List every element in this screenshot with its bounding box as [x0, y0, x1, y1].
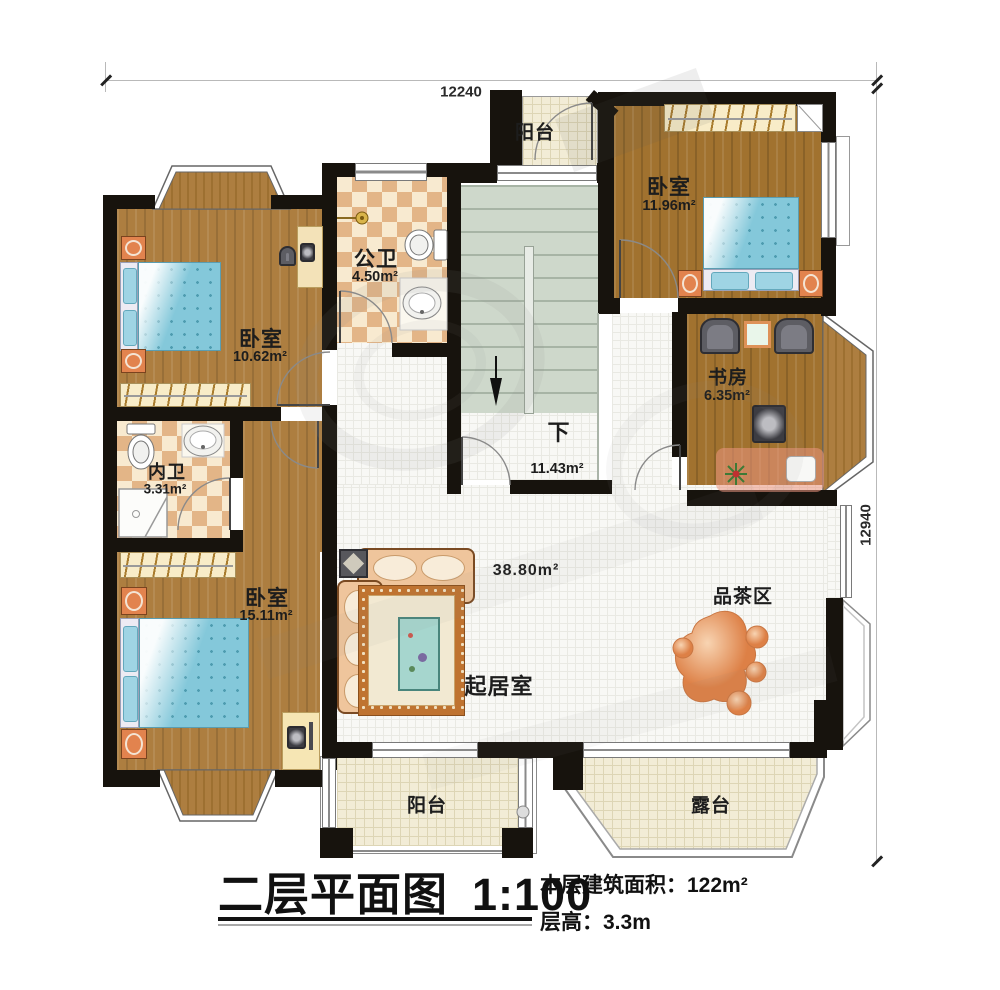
sink-inner: [182, 424, 224, 457]
sink-public: [400, 278, 447, 330]
room-area-bedroom-bottom-left: 15.11m²: [239, 608, 292, 624]
room-area-public-bath: 4.50m²: [352, 269, 398, 285]
door-bedroom-top-left: [271, 421, 318, 468]
plan-title: 二层平面图1:100: [218, 858, 592, 923]
dimension-top-value: 12240: [440, 84, 482, 101]
door-public-bath: [340, 291, 392, 343]
shelf-line: [799, 106, 821, 130]
room-area-inner-bath: 3.31m²: [144, 482, 187, 497]
room-area-study: 6.35m²: [704, 388, 750, 404]
room-label-study: 书房: [708, 363, 748, 390]
living-area-label: 38.80m²: [493, 562, 560, 580]
floor-area-note: 本层建筑面积：122m²: [540, 869, 748, 899]
room-label-living: 起居室: [464, 669, 533, 701]
room-label-terrace: 露台: [691, 791, 731, 818]
room-label-balcony-top: 阳台: [515, 118, 555, 145]
door-stairs: [462, 437, 510, 485]
tea-lounge: [673, 611, 768, 715]
title-underline: [218, 917, 532, 921]
stairs-down-arrow: [490, 356, 502, 406]
toilet-public: [405, 230, 447, 260]
wall-lamp: [337, 212, 368, 224]
door-leaves: [230, 103, 680, 530]
floor-height-note: 层高：3.3m: [540, 906, 651, 936]
plant: [725, 463, 747, 485]
room-label-balcony-bottom: 阳台: [407, 791, 447, 818]
stairs-area-label: 11.43m²: [530, 461, 583, 477]
dimension-right-value: 12940: [858, 504, 875, 546]
room-area-bedroom-top-left: 10.62m²: [233, 349, 287, 365]
stairs-direction-label: 下: [547, 415, 570, 447]
room-label-inner-bath: 内卫: [148, 458, 186, 484]
door-study: [635, 445, 680, 490]
room-area-bedroom-top-right: 11.96m²: [642, 198, 695, 214]
room-label-bedroom-top-right: 卧室: [647, 171, 691, 201]
door-bedroom-top-right: [620, 240, 678, 298]
room-label-tea-area: 品茶区: [713, 582, 773, 609]
floor-plan: 阳台 卧室 11.96m² 公卫 4.50m² 卧室 10.62m² 下 11.…: [0, 0, 1000, 990]
plan-title-text: 二层平面图: [218, 869, 448, 920]
rail-post: [517, 806, 529, 818]
title-underline-2: [218, 924, 532, 926]
